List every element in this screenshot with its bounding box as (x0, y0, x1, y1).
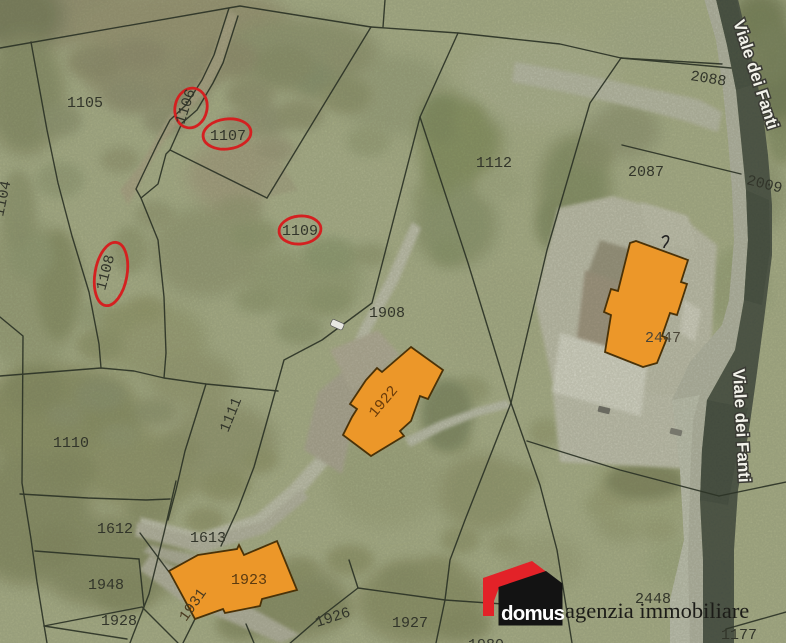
svg-text:1980: 1980 (468, 637, 504, 643)
svg-text:2087: 2087 (628, 164, 664, 181)
svg-text:1613: 1613 (190, 530, 226, 547)
svg-text:1105: 1105 (67, 95, 103, 112)
svg-text:1908: 1908 (369, 305, 405, 322)
svg-text:1923: 1923 (231, 572, 267, 589)
svg-text:1112: 1112 (476, 155, 512, 172)
svg-text:1948: 1948 (88, 577, 124, 594)
svg-text:1612: 1612 (97, 521, 133, 538)
svg-text:1928: 1928 (101, 613, 137, 630)
svg-text:1177: 1177 (721, 627, 757, 643)
svg-text:1927: 1927 (392, 615, 428, 632)
svg-text:1107: 1107 (210, 128, 246, 145)
svg-text:domus: domus (501, 602, 565, 625)
svg-text:agenzia immobiliare: agenzia immobiliare (565, 598, 749, 623)
svg-text:1109: 1109 (282, 223, 318, 240)
svg-text:2447: 2447 (645, 330, 681, 347)
svg-text:1110: 1110 (53, 435, 89, 452)
